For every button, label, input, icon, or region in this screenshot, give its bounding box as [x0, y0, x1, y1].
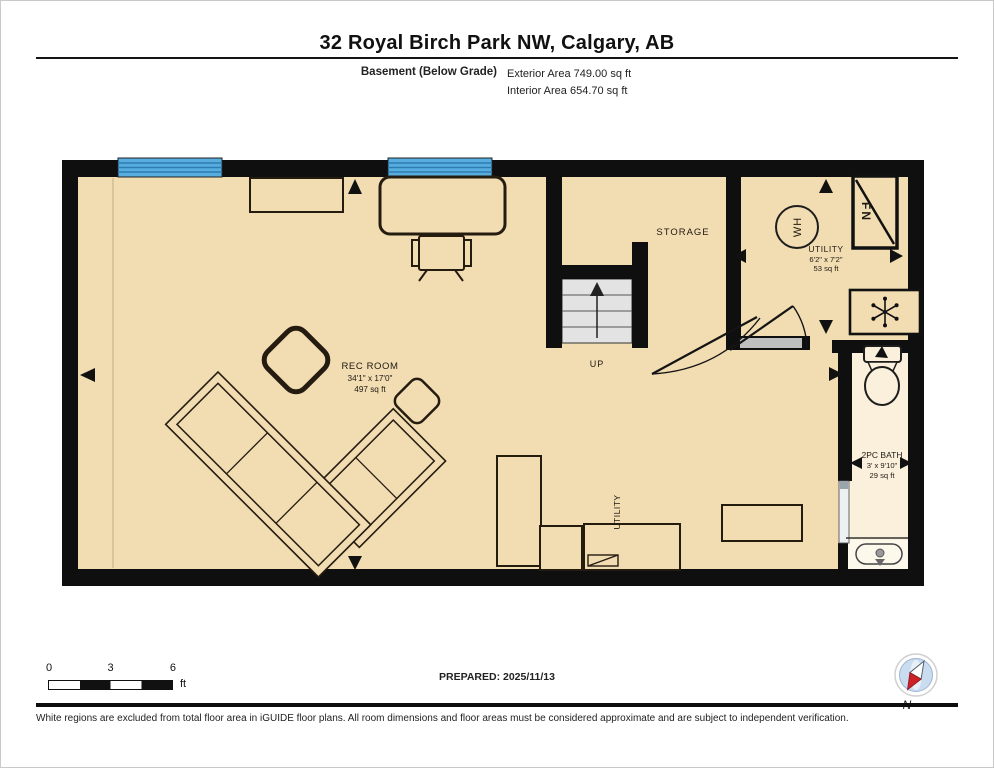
- footer-divider: [36, 703, 958, 707]
- sideboard: [250, 178, 343, 212]
- wall-stairs-right: [632, 242, 648, 348]
- exterior-area: Exterior Area 749.00 sq ft: [507, 66, 631, 83]
- wall-recroom-storage: [546, 177, 562, 348]
- utility-label: UTILITY 6'2" x 7'2" 53 sq ft: [808, 244, 843, 273]
- page-title: 32 Royal Birch Park NW, Calgary, AB: [0, 32, 994, 55]
- floor-plan-page: WH FN: [0, 0, 994, 768]
- desk: [380, 177, 505, 234]
- svg-text:497 sq ft: 497 sq ft: [354, 385, 386, 394]
- disclaimer-text: White regions are excluded from total fl…: [36, 713, 966, 724]
- wall-stairs-top: [546, 265, 646, 279]
- door-bath-slider: [839, 481, 849, 543]
- floor-drain-icon: [850, 290, 920, 334]
- svg-text:REC ROOM: REC ROOM: [341, 361, 398, 372]
- floor-plan-canvas: WH FN: [0, 0, 994, 768]
- prepared-date: PREPARED: 2025/11/13: [0, 671, 994, 683]
- furnace-icon: FN: [853, 176, 897, 248]
- svg-text:UTILITY: UTILITY: [808, 244, 843, 254]
- utility-nook-label: UTILITY: [612, 494, 622, 529]
- wall-bath-left-stub: [838, 543, 848, 570]
- water-heater-label: WH: [792, 217, 804, 237]
- appliance-square: [540, 526, 582, 570]
- shelf-tall: [497, 456, 541, 566]
- svg-text:6'2" x 7'2": 6'2" x 7'2": [809, 255, 843, 264]
- svg-text:3' x 9'10": 3' x 9'10": [867, 461, 898, 470]
- title-divider: [36, 57, 958, 59]
- wall-opening: [740, 338, 802, 348]
- svg-text:2PC BATH: 2PC BATH: [862, 450, 903, 460]
- svg-text:34'1" x 17'0": 34'1" x 17'0": [348, 374, 393, 383]
- wall-left: [62, 160, 78, 586]
- staircase: [562, 279, 632, 343]
- furnace-label: FN: [859, 202, 873, 222]
- window-1: [118, 158, 222, 177]
- table-low: [722, 505, 802, 541]
- toilet-icon: [864, 346, 901, 405]
- wall-storage-utility: [726, 177, 741, 348]
- up-label: UP: [590, 359, 605, 369]
- storage-label: STORAGE: [656, 227, 709, 238]
- wall-right: [908, 160, 924, 586]
- bench-small: [588, 555, 618, 566]
- wall-bottom: [62, 569, 924, 586]
- interior-area: Interior Area 654.70 sq ft: [507, 83, 631, 100]
- window-2: [388, 158, 492, 177]
- area-summary: Exterior Area 749.00 sq ft Interior Area…: [507, 66, 631, 100]
- svg-text:53 sq ft: 53 sq ft: [814, 264, 840, 273]
- svg-text:29 sq ft: 29 sq ft: [870, 471, 896, 480]
- wall-bath-left: [838, 353, 852, 481]
- floor-level-label: Basement (Below Grade): [0, 66, 497, 78]
